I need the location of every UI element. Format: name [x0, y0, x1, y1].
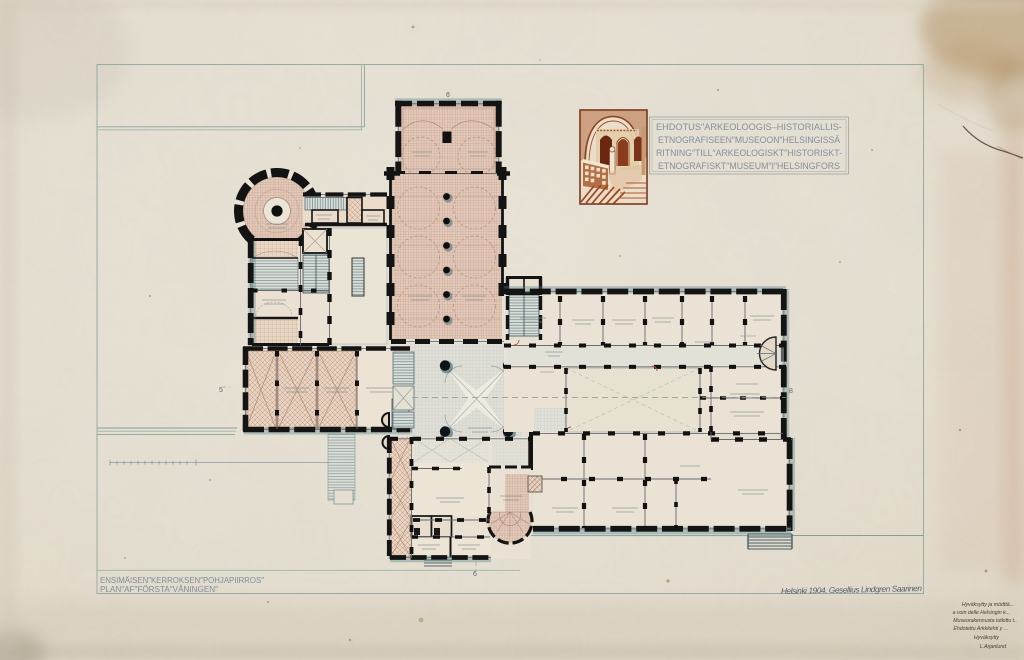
svg-text:Hyväksytty ja mödttä...: Hyväksytty ja mödttä...	[962, 602, 1014, 608]
svg-text:ETNOGRAFISEEN″MUSEOON″HELSINGI: ETNOGRAFISEEN″MUSEOON″HELSINGISSÄ	[658, 135, 841, 145]
svg-text:8: 8	[789, 388, 793, 395]
svg-text:ETNOGRAFISKT″MUSEUM″I″HELSINGF: ETNOGRAFISKT″MUSEUM″I″HELSINGFORS	[658, 161, 840, 171]
svg-text:EHDOTUS″ARKEOLOOGIS–HISTORIALL: EHDOTUS″ARKEOLOOGIS–HISTORIALLIS-	[656, 122, 842, 132]
svg-text:RITNING″TILL″ARKEOLOGISKT″HIST: RITNING″TILL″ARKEOLOGISKT″HISTORISKT-	[656, 148, 842, 158]
svg-text:6: 6	[446, 92, 450, 99]
svg-text:Hyväksytty: Hyväksytty	[974, 635, 999, 641]
svg-text:a voin delle Helsingin k...: a voin delle Helsingin k...	[953, 610, 1010, 616]
svg-text:ENSIMÄISEN″KERROKSEN″POHJAPIIR: ENSIMÄISEN″KERROKSEN″POHJAPIIRROS″	[100, 576, 264, 585]
svg-text:L.Arjanlund: L.Arjanlund	[980, 644, 1007, 650]
svg-text:Ehdotettu Arkkitehti y ...: Ehdotettu Arkkitehti y ...	[953, 626, 1008, 632]
svg-text:5: 5	[219, 387, 223, 394]
svg-text:PLAN″AF″FÖRSTA″VÅNINGEN″: PLAN″AF″FÖRSTA″VÅNINGEN″	[100, 585, 218, 594]
svg-text:Museorakennusta tutkittu t..: Museorakennusta tutkittu t..	[953, 618, 1017, 624]
svg-text:6: 6	[473, 571, 477, 578]
